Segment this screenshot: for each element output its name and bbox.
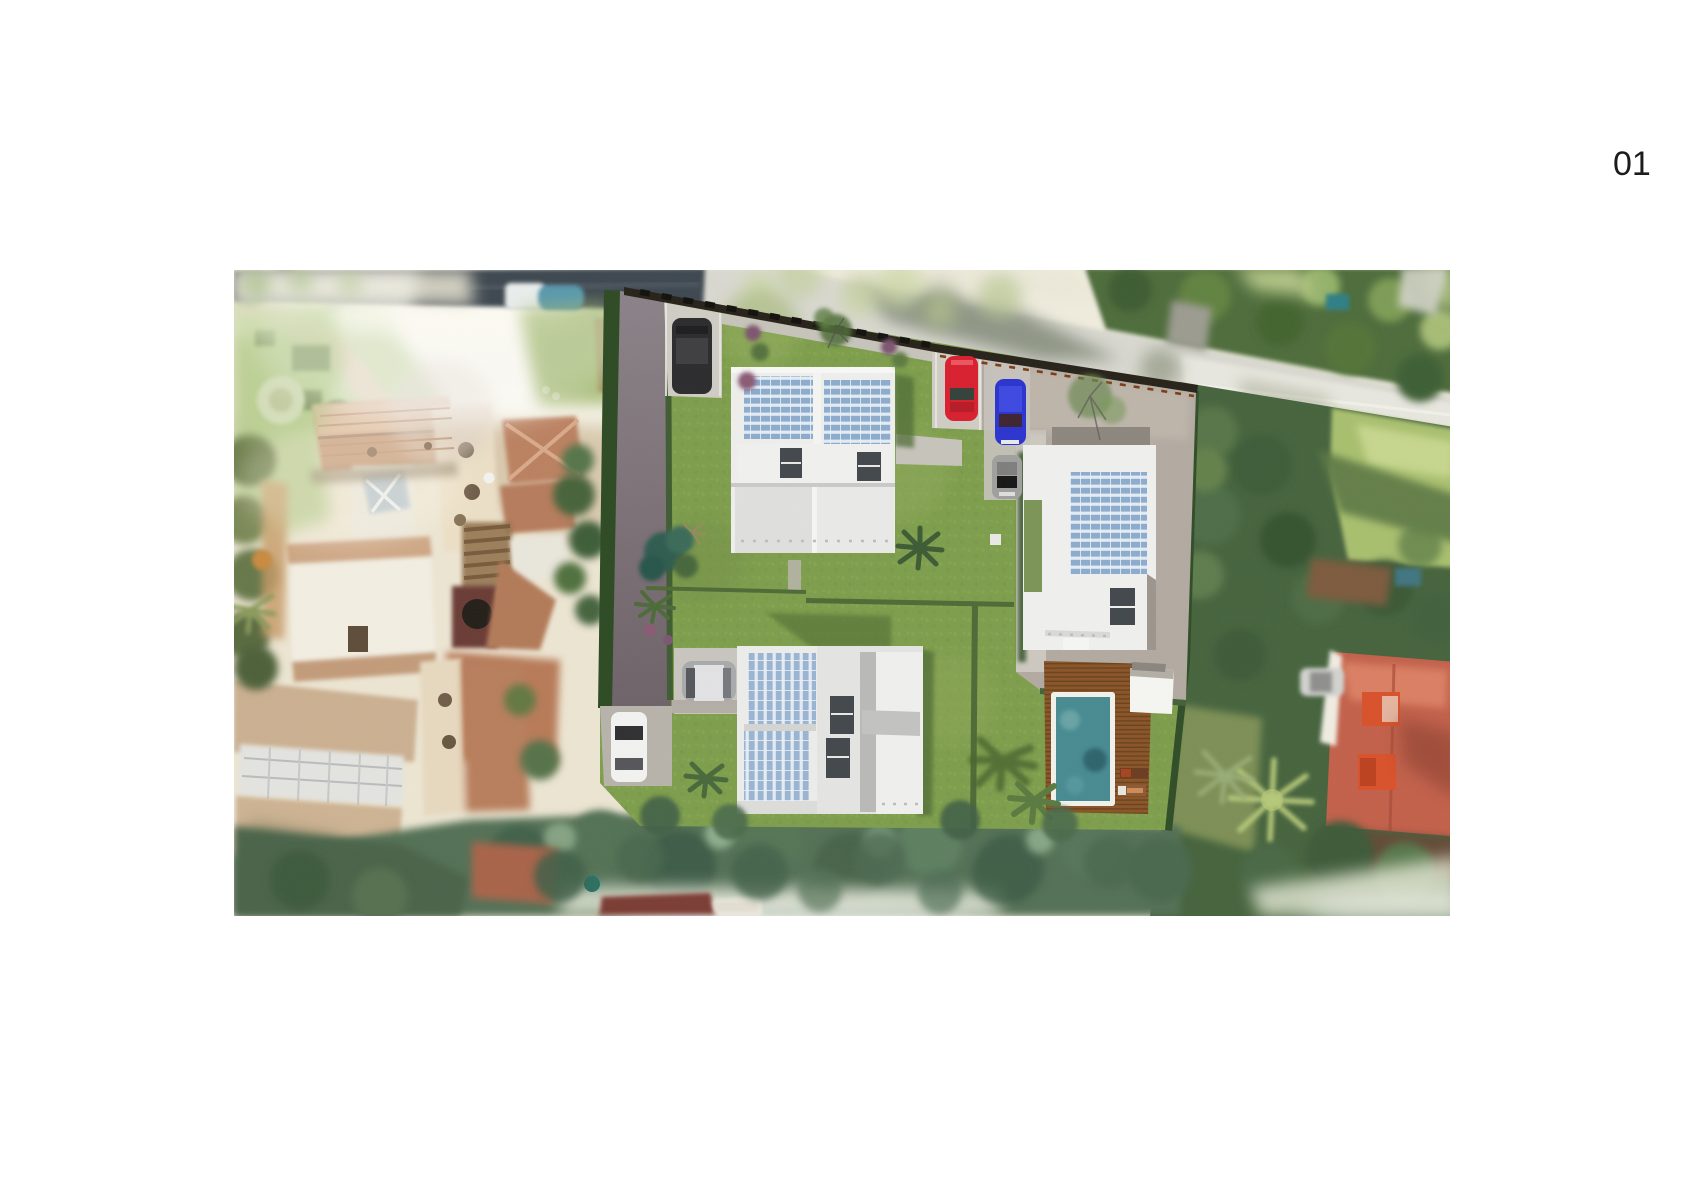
svg-text:01: 01	[1613, 145, 1651, 183]
